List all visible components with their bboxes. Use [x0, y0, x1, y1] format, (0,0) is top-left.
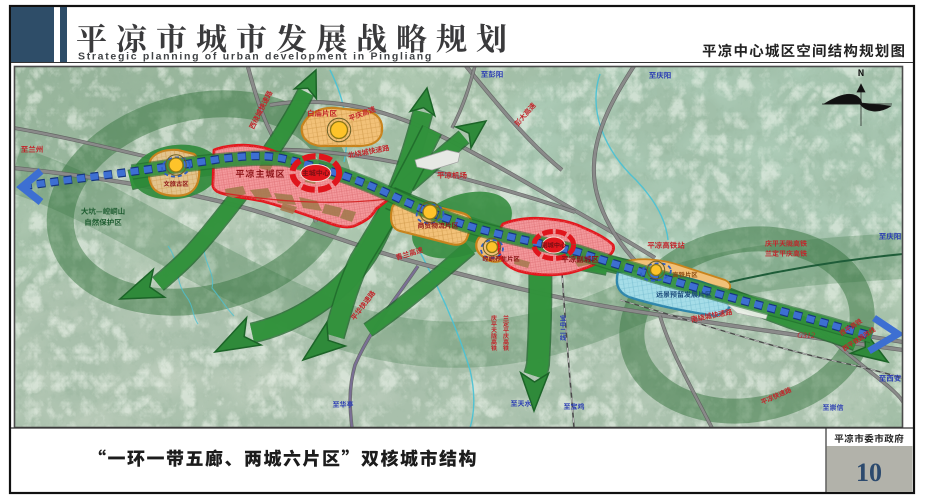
- svg-text:10: 10: [856, 458, 882, 487]
- svg-text:G312: G312: [797, 331, 815, 340]
- svg-text:Strategic planning of urban de: Strategic planning of urban development …: [78, 51, 433, 63]
